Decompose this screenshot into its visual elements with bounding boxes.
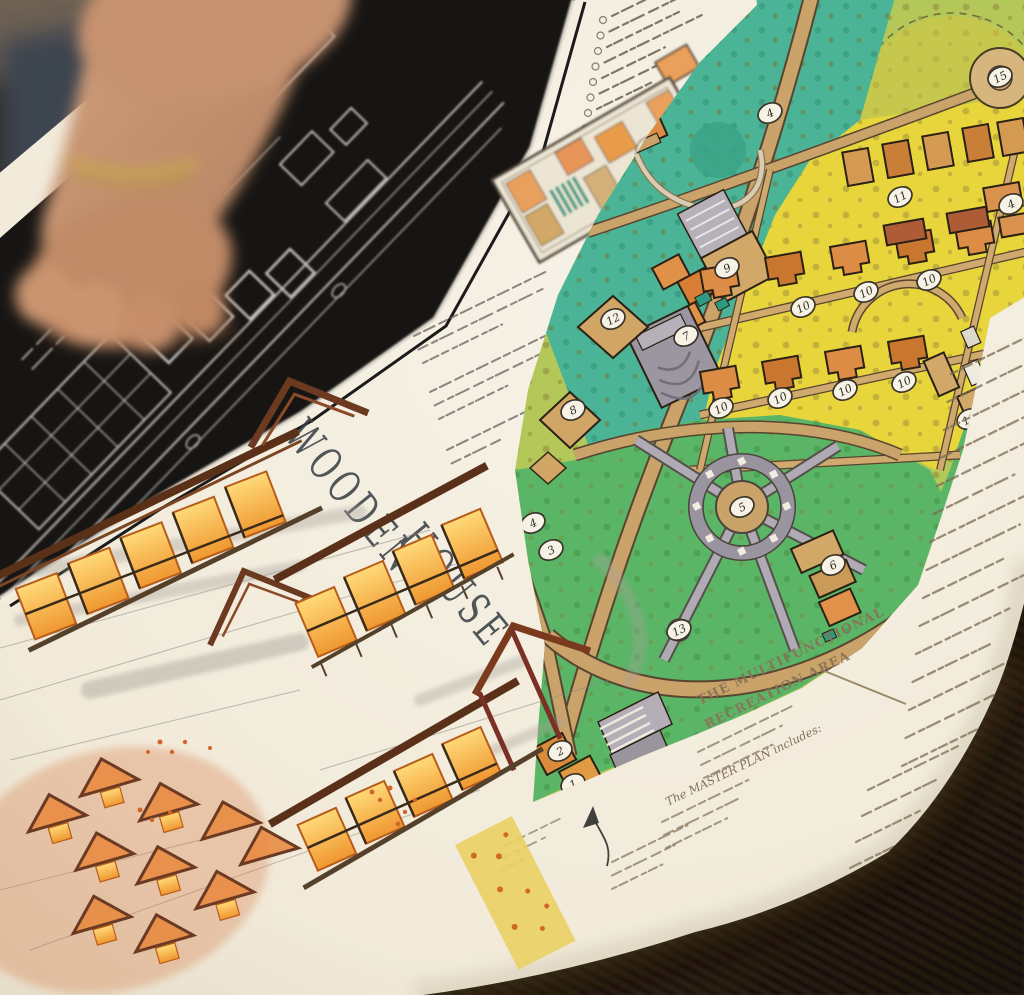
poster-photo-canvas: WOODEN HOUSE <box>0 0 1024 995</box>
map-tree-canopy <box>690 122 746 178</box>
knuckle <box>120 292 180 352</box>
knuckle <box>63 283 127 347</box>
knuckle <box>174 284 226 336</box>
photograph-of-poster: WOODEN HOUSE <box>0 0 1024 995</box>
